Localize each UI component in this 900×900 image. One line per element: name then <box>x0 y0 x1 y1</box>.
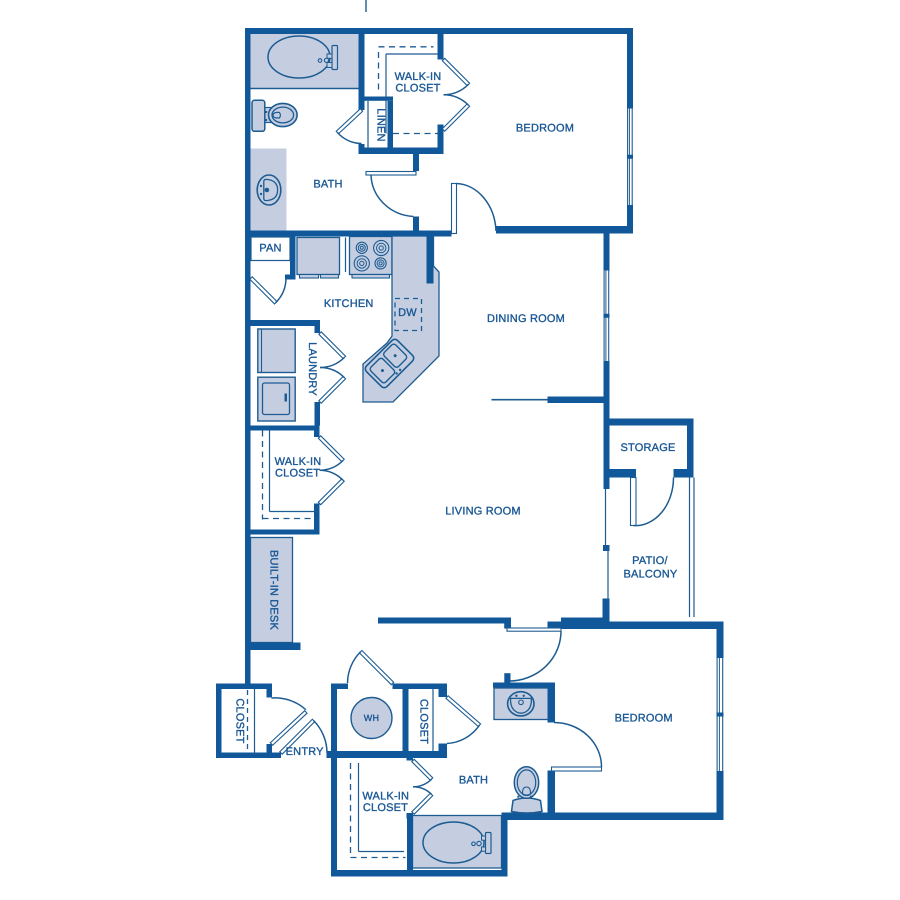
svg-text:STORAGE: STORAGE <box>621 442 676 454</box>
svg-text:BATH: BATH <box>313 179 342 191</box>
svg-text:BATH: BATH <box>459 775 488 787</box>
svg-text:CLOSET: CLOSET <box>417 699 429 744</box>
svg-text:CLOSET: CLOSET <box>234 698 246 743</box>
svg-text:DINING ROOM: DINING ROOM <box>487 313 565 325</box>
svg-text:PATIO/: PATIO/ <box>632 555 668 567</box>
svg-text:BEDROOM: BEDROOM <box>615 713 673 725</box>
svg-text:WALK-IN: WALK-IN <box>362 791 409 803</box>
svg-text:WALK-IN: WALK-IN <box>275 456 322 468</box>
svg-text:LAUNDRY: LAUNDRY <box>306 342 318 396</box>
svg-text:KITCHEN: KITCHEN <box>324 298 374 310</box>
svg-text:BEDROOM: BEDROOM <box>516 123 574 135</box>
svg-text:CLOSET: CLOSET <box>275 467 320 479</box>
svg-text:WH: WH <box>364 713 379 723</box>
svg-text:CLOSET: CLOSET <box>395 83 440 95</box>
svg-text:DW: DW <box>398 307 417 319</box>
svg-text:WALK-IN: WALK-IN <box>395 71 442 83</box>
svg-text:CLOSET: CLOSET <box>363 802 408 814</box>
svg-text:LIVING ROOM: LIVING ROOM <box>445 505 521 517</box>
svg-text:BALCONY: BALCONY <box>624 569 678 581</box>
svg-text:BUILT-IN DESK: BUILT-IN DESK <box>268 550 280 630</box>
svg-text:ENTRY: ENTRY <box>286 746 325 758</box>
svg-text:PAN: PAN <box>259 243 281 255</box>
svg-text:LINEN: LINEN <box>375 108 387 141</box>
